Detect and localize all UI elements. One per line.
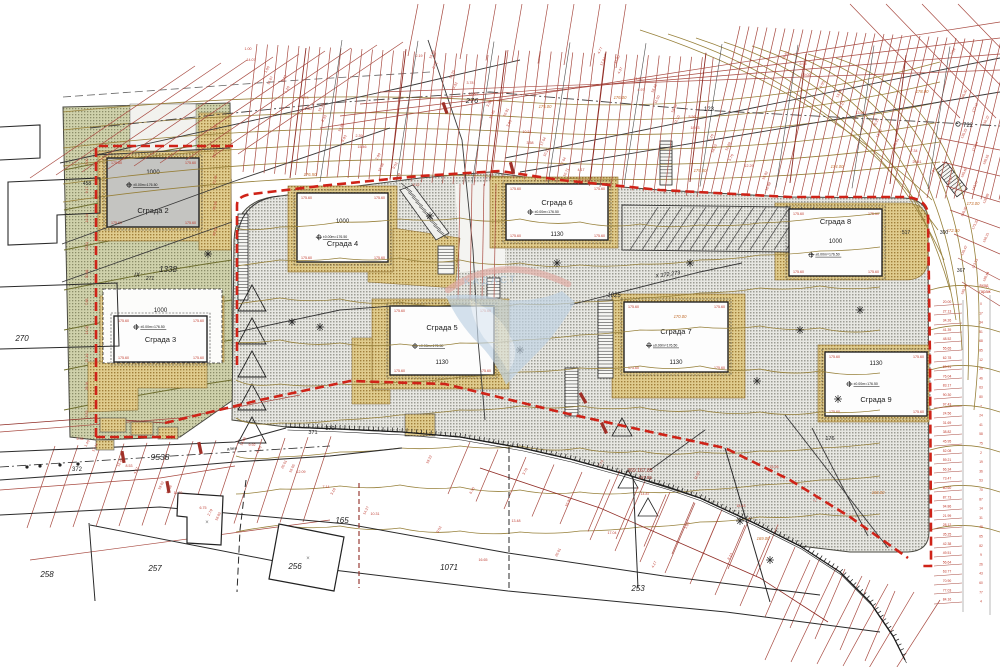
- svg-text:28.12: 28.12: [943, 523, 952, 527]
- svg-text:5.53: 5.53: [85, 410, 89, 417]
- svg-text:175.60: 175.60: [374, 196, 385, 200]
- svg-text:1000: 1000: [154, 308, 168, 314]
- svg-text:IX: IX: [134, 273, 141, 279]
- svg-text:59.21: 59.21: [943, 458, 952, 462]
- svg-text:175.60: 175.60: [301, 196, 312, 200]
- svg-text:36: 36: [979, 469, 983, 473]
- svg-text:123: 123: [704, 107, 715, 113]
- svg-text:10.31: 10.31: [371, 512, 380, 516]
- svg-text:256: 256: [287, 562, 302, 571]
- svg-text:4.97: 4.97: [638, 88, 645, 92]
- svg-text:1130: 1130: [551, 232, 565, 238]
- svg-text:5.56: 5.56: [689, 115, 696, 119]
- svg-text:90.30: 90.30: [943, 393, 952, 397]
- svg-text:1130: 1130: [870, 361, 884, 367]
- svg-text:175.60: 175.60: [510, 234, 521, 238]
- svg-text:27.13: 27.13: [943, 309, 952, 313]
- svg-text:1.80: 1.80: [305, 107, 312, 111]
- svg-text:19: 19: [979, 460, 983, 464]
- svg-text:16.34: 16.34: [85, 213, 89, 222]
- svg-text:77.03: 77.03: [943, 588, 952, 592]
- svg-text:165: 165: [335, 516, 349, 525]
- svg-text:65: 65: [979, 535, 983, 539]
- svg-text:34: 34: [979, 321, 983, 325]
- svg-text:175.60: 175.60: [793, 212, 804, 216]
- svg-text:178.00: 178.00: [916, 89, 929, 94]
- svg-text:300: 300: [940, 230, 949, 236]
- svg-text:24: 24: [979, 414, 983, 418]
- svg-text:±0.00m=176.50: ±0.00m=176.50: [653, 343, 677, 347]
- svg-text:60: 60: [979, 581, 983, 585]
- svg-text:Сграда 6: Сграда 6: [541, 198, 572, 207]
- svg-text:174.00: 174.00: [831, 164, 844, 169]
- svg-text:42.38: 42.38: [943, 542, 952, 546]
- svg-text:12: 12: [979, 358, 983, 362]
- svg-text:11.70: 11.70: [174, 491, 183, 495]
- svg-text:270: 270: [14, 334, 29, 343]
- svg-text:80: 80: [979, 395, 983, 399]
- svg-text:±0.00m=176.50: ±0.00m=176.50: [534, 210, 558, 214]
- svg-text:94.86: 94.86: [943, 505, 952, 509]
- svg-text:31.69: 31.69: [943, 421, 952, 425]
- svg-text:12.09: 12.09: [297, 470, 306, 474]
- svg-text:Сграда 3: Сграда 3: [145, 335, 176, 344]
- svg-text:175.00: 175.00: [694, 168, 707, 173]
- svg-text:175.60: 175.60: [829, 355, 840, 359]
- svg-text:258: 258: [39, 570, 54, 579]
- svg-text:13.48: 13.48: [512, 519, 521, 523]
- svg-text:6.95: 6.95: [800, 62, 807, 66]
- svg-text:517: 517: [902, 230, 911, 236]
- svg-text:15.26: 15.26: [770, 465, 779, 469]
- svg-text:35.25: 35.25: [943, 533, 952, 537]
- svg-text:17: 17: [979, 311, 983, 315]
- svg-text:175.60: 175.60: [829, 410, 840, 414]
- svg-text:10.51: 10.51: [523, 130, 532, 134]
- svg-text:18.43: 18.43: [737, 504, 746, 508]
- svg-text:276: 276: [465, 96, 479, 105]
- svg-text:367: 367: [957, 268, 966, 274]
- svg-text:20.00: 20.00: [943, 300, 952, 304]
- svg-text:3.58: 3.58: [527, 141, 534, 145]
- svg-text:1130: 1130: [670, 360, 684, 366]
- svg-text:19.02: 19.02: [802, 73, 811, 77]
- svg-text:175.60: 175.60: [793, 270, 804, 274]
- svg-text:14.07: 14.07: [247, 58, 256, 62]
- svg-text:73.47: 73.47: [943, 477, 952, 481]
- svg-text:175.00: 175.00: [539, 104, 552, 109]
- svg-text:458: 458: [83, 181, 92, 187]
- svg-text:2: 2: [980, 451, 982, 455]
- svg-text:43: 43: [979, 572, 983, 576]
- svg-text:48.52: 48.52: [943, 337, 952, 341]
- svg-text:9.17: 9.17: [85, 186, 89, 193]
- svg-text:175.60: 175.60: [185, 221, 196, 225]
- svg-text:±0.00m=176.50: ±0.00m=176.50: [815, 253, 839, 257]
- svg-text:77: 77: [979, 590, 983, 594]
- svg-text:1025: 1025: [607, 293, 621, 299]
- svg-text:8.73: 8.73: [302, 96, 309, 100]
- svg-text:4: 4: [980, 600, 982, 604]
- svg-text:87: 87: [979, 497, 983, 501]
- svg-text:369 167.85: 369 167.85: [627, 468, 652, 474]
- svg-text:Сграда 9: Сграда 9: [860, 395, 891, 404]
- svg-text:173.00: 173.00: [967, 201, 980, 206]
- svg-text:48: 48: [979, 525, 983, 529]
- svg-text:9.92: 9.92: [249, 443, 256, 447]
- svg-text:167.85: 167.85: [638, 475, 652, 480]
- svg-text:722: 722: [963, 123, 974, 129]
- svg-text:69.91: 69.91: [943, 365, 952, 369]
- svg-text:62.78: 62.78: [943, 356, 952, 360]
- svg-text:1.00: 1.00: [245, 47, 252, 51]
- svg-text:7.14: 7.14: [323, 485, 330, 489]
- svg-text:170.00: 170.00: [674, 314, 687, 319]
- svg-text:175.60: 175.60: [628, 305, 639, 309]
- svg-text:5.36: 5.36: [77, 437, 84, 441]
- svg-text:7.34: 7.34: [911, 149, 918, 153]
- svg-text:15.46: 15.46: [358, 145, 367, 149]
- svg-text:21.99: 21.99: [943, 514, 952, 518]
- svg-text:9.12: 9.12: [413, 183, 420, 187]
- svg-text:30.68: 30.68: [85, 269, 89, 278]
- svg-text:Сграда 8: Сграда 8: [820, 217, 851, 226]
- svg-text:24.56: 24.56: [943, 412, 952, 416]
- svg-text:29: 29: [979, 367, 983, 371]
- svg-text:175.60: 175.60: [714, 305, 725, 309]
- svg-text:14.87: 14.87: [641, 492, 650, 496]
- svg-text:176: 176: [825, 436, 834, 442]
- svg-text:175.60: 175.60: [594, 234, 605, 238]
- svg-text:175.60: 175.60: [394, 369, 405, 373]
- svg-text:70.90: 70.90: [943, 579, 952, 583]
- svg-text:±0.00m=176.50: ±0.00m=176.50: [133, 183, 157, 187]
- svg-text:45.95: 45.95: [943, 440, 952, 444]
- svg-text:70: 70: [979, 488, 983, 492]
- svg-text:84.16: 84.16: [943, 598, 952, 602]
- svg-text:13.68: 13.68: [856, 111, 865, 115]
- svg-text:87.73: 87.73: [943, 495, 952, 499]
- svg-text:21.19: 21.19: [85, 353, 89, 362]
- svg-text:1338: 1338: [159, 265, 177, 274]
- svg-text:1000: 1000: [829, 239, 843, 245]
- svg-text:3.78: 3.78: [467, 81, 474, 85]
- svg-text:175.60: 175.60: [913, 410, 924, 414]
- svg-text:97.43: 97.43: [943, 402, 952, 406]
- svg-text:56.64: 56.64: [943, 560, 952, 564]
- svg-text:58: 58: [979, 432, 983, 436]
- svg-text:2.00: 2.00: [85, 158, 89, 165]
- svg-text:41.39: 41.39: [943, 328, 952, 332]
- svg-text:175.60: 175.60: [510, 187, 521, 191]
- svg-text:49.51: 49.51: [943, 551, 952, 555]
- svg-text:14.02: 14.02: [85, 325, 89, 334]
- svg-text:175.60: 175.60: [594, 187, 605, 191]
- svg-text:18.63: 18.63: [691, 126, 700, 130]
- svg-text:175.60: 175.60: [480, 369, 491, 373]
- svg-text:175.60: 175.60: [394, 309, 405, 313]
- svg-text:17.04: 17.04: [608, 531, 617, 535]
- svg-text:82: 82: [979, 544, 983, 548]
- svg-text:175.60: 175.60: [118, 319, 129, 323]
- svg-text:175.60: 175.60: [868, 270, 879, 274]
- svg-text:6.75: 6.75: [200, 506, 207, 510]
- svg-text:7.85: 7.85: [85, 298, 89, 305]
- svg-text:63: 63: [979, 386, 983, 390]
- svg-text:20.41: 20.41: [913, 160, 922, 164]
- svg-text:2.39: 2.39: [356, 134, 363, 138]
- svg-text:2.19: 2.19: [416, 54, 423, 58]
- svg-text:гараж: гараж: [979, 289, 990, 294]
- svg-text:253: 253: [630, 584, 645, 593]
- svg-text:×: ×: [306, 556, 310, 562]
- svg-text:±0.00m=176.50: ±0.00m=176.50: [853, 382, 877, 386]
- svg-text:×: ×: [205, 520, 209, 526]
- svg-text:вход: вход: [980, 283, 990, 288]
- svg-text:51: 51: [979, 330, 983, 334]
- svg-text:372: 372: [72, 467, 83, 473]
- svg-text:26: 26: [979, 562, 983, 566]
- svg-text:0: 0: [980, 302, 982, 306]
- svg-text:11.90: 11.90: [634, 77, 643, 81]
- svg-text:257: 257: [147, 564, 162, 573]
- svg-text:±0.00m=176.50: ±0.00m=176.50: [140, 325, 164, 329]
- svg-text:75: 75: [979, 442, 983, 446]
- svg-text:176.50: 176.50: [304, 172, 317, 177]
- svg-text:52.08: 52.08: [943, 449, 952, 453]
- svg-text:175.60: 175.60: [193, 356, 204, 360]
- svg-text:Сграда 5: Сграда 5: [426, 323, 457, 332]
- svg-text:53: 53: [979, 479, 983, 483]
- svg-text:1071: 1071: [440, 563, 458, 572]
- svg-text:34.26: 34.26: [943, 319, 952, 323]
- svg-text:9538: 9538: [151, 452, 170, 462]
- svg-text:4.17: 4.17: [578, 168, 585, 172]
- svg-text:23.51: 23.51: [85, 241, 89, 250]
- svg-text:46: 46: [979, 376, 983, 380]
- svg-text:±0.00m=176.50: ±0.00m=176.50: [323, 235, 347, 239]
- svg-text:175.60: 175.60: [185, 161, 196, 165]
- svg-text:370: 370: [325, 426, 334, 432]
- svg-text:172.00: 172.00: [947, 228, 960, 233]
- svg-text:175.60: 175.60: [193, 319, 204, 323]
- svg-text:80.60: 80.60: [943, 486, 952, 490]
- svg-text:17.24: 17.24: [580, 179, 589, 183]
- svg-text:176.00: 176.00: [614, 95, 627, 100]
- svg-text:271: 271: [145, 276, 155, 282]
- svg-text:175.60: 175.60: [118, 356, 129, 360]
- svg-text:76.04: 76.04: [943, 374, 952, 378]
- svg-text:68: 68: [979, 339, 983, 343]
- svg-text:38.82: 38.82: [943, 430, 952, 434]
- svg-text:175.60: 175.60: [301, 256, 312, 260]
- svg-text:12.29: 12.29: [745, 164, 754, 168]
- svg-text:168.00: 168.00: [872, 490, 885, 495]
- svg-text:1130: 1130: [436, 360, 450, 366]
- svg-text:169.00: 169.00: [757, 536, 770, 541]
- svg-text:66.34: 66.34: [943, 467, 952, 471]
- svg-text:31: 31: [979, 516, 983, 520]
- svg-text:8.53: 8.53: [126, 464, 133, 468]
- svg-text:7: 7: [980, 404, 982, 408]
- svg-text:14: 14: [979, 507, 983, 511]
- svg-text:371: 371: [308, 430, 317, 436]
- svg-text:Сграда 4: Сграда 4: [327, 239, 358, 248]
- svg-text:83.17: 83.17: [943, 384, 952, 388]
- svg-text:41: 41: [979, 423, 983, 427]
- svg-text:55.65: 55.65: [943, 347, 952, 351]
- svg-text:28.36: 28.36: [85, 381, 89, 390]
- svg-text:16.65: 16.65: [479, 558, 488, 562]
- svg-text:9: 9: [980, 553, 982, 557]
- svg-text:175.60: 175.60: [913, 355, 924, 359]
- svg-text:85: 85: [979, 349, 983, 353]
- svg-text:63.77: 63.77: [943, 570, 952, 574]
